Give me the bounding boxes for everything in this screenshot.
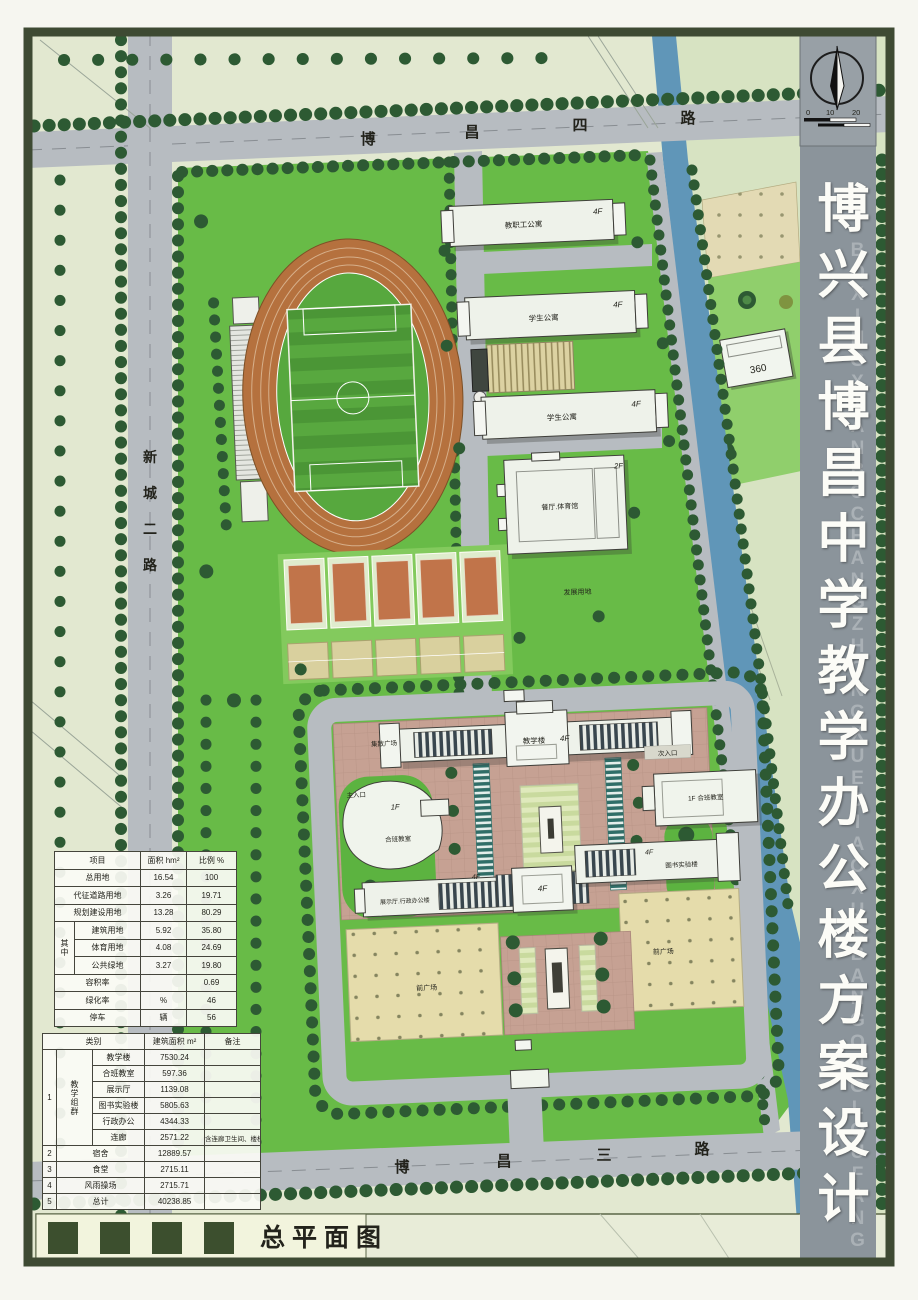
table-row: 1 教学组群 教学楼 7530.24 xyxy=(43,1050,261,1066)
cell xyxy=(205,1146,261,1162)
cell: 35.80 xyxy=(187,922,237,940)
cell xyxy=(205,1162,261,1178)
cell: % xyxy=(141,992,187,1010)
table-row: 总用地 16.54 100 xyxy=(55,869,237,887)
cell: 停车 xyxy=(55,1009,141,1027)
cell xyxy=(141,974,187,992)
road-top-char: 路 xyxy=(680,109,696,127)
cell: 80.29 xyxy=(187,904,237,922)
scale-tick: 10 xyxy=(826,108,834,117)
cell: 辆 xyxy=(141,1009,187,1027)
cell: 4.08 xyxy=(141,939,187,957)
cell: 19.71 xyxy=(187,887,237,905)
cell: 16.54 xyxy=(141,869,187,887)
header-item: 项目 xyxy=(55,852,141,870)
teaching-building-floors: 4F xyxy=(560,734,571,743)
group-label: 其中 xyxy=(55,922,75,975)
cell: 食堂 xyxy=(57,1162,145,1178)
cell: 规划建设用地 xyxy=(55,904,141,922)
cell: 风雨操场 xyxy=(57,1178,145,1194)
cell: 容积率 xyxy=(55,974,141,992)
drawing-title: 总平面图 xyxy=(260,1224,388,1252)
bottom-strip: 总平面图 xyxy=(36,1214,890,1260)
scale-tick: 0 xyxy=(806,108,810,117)
header-ratio: 比例 % xyxy=(187,852,237,870)
student-apartment-a-label: 学生公寓 xyxy=(528,312,558,323)
cell: 24.69 xyxy=(187,939,237,957)
cell: 3.27 xyxy=(141,957,187,975)
table-row: 项目 面积 hm² 比例 % xyxy=(55,852,237,870)
road-top-char: 四 xyxy=(572,117,587,134)
library-lab-floors: 4F xyxy=(645,849,654,856)
staff-apartment-floors: 4F xyxy=(593,207,604,216)
cell xyxy=(205,1178,261,1194)
cell: 1139.08 xyxy=(145,1082,205,1098)
cell: 597.36 xyxy=(145,1066,205,1082)
student-apartment-b-label: 学生公寓 xyxy=(547,411,577,422)
cell xyxy=(205,1066,261,1082)
cell: 体育用地 xyxy=(75,939,141,957)
cell: 公共绿地 xyxy=(75,957,141,975)
table-row: 3 食堂 2715.11 xyxy=(43,1162,261,1178)
teaching-complex: 教学楼 4F 1F 合班教室 1F 合班教室 展示厅.行政办公楼 4F xyxy=(332,692,765,924)
student-apartment-a-floors: 4F xyxy=(613,300,624,309)
cell: 展示厅 xyxy=(93,1082,145,1098)
scale-tick: 20 xyxy=(852,108,860,117)
road-left-char: 新 xyxy=(143,449,157,465)
table-row: 代征道路用地 3.26 19.71 xyxy=(55,887,237,905)
combined-class-west-floors: 1F xyxy=(391,802,401,811)
cell: 2715.71 xyxy=(145,1178,205,1194)
cell xyxy=(205,1114,261,1130)
table-row: 绿化率 % 46 xyxy=(55,992,237,1010)
cell xyxy=(205,1050,261,1066)
table-row: 5 总计 40238.85 xyxy=(43,1194,261,1210)
student-apartment-b-floors: 4F xyxy=(631,399,642,408)
road-bottom-char: 路 xyxy=(694,1140,710,1158)
cell xyxy=(205,1082,261,1098)
road-left-char: 路 xyxy=(143,557,158,573)
site-plan-sheet: 360 xyxy=(0,0,918,1300)
cell: 图书实验楼 xyxy=(93,1098,145,1114)
table-row: 体育用地 4.08 24.69 xyxy=(55,939,237,957)
cell: 总用地 xyxy=(55,869,141,887)
cell: 2571.22 xyxy=(145,1130,205,1146)
cell: 3 xyxy=(43,1162,57,1178)
cell: 12889.57 xyxy=(145,1146,205,1162)
road-top-char: 昌 xyxy=(464,124,479,141)
table-row: 规划建设用地 13.28 80.29 xyxy=(55,904,237,922)
teaching-building-label: 教学楼 xyxy=(523,735,546,746)
header-category: 类别 xyxy=(43,1034,145,1050)
table-row: 停车 辆 56 xyxy=(55,1009,237,1027)
road-top-char: 博 xyxy=(360,130,375,148)
sports-courts xyxy=(278,544,513,684)
legend-bars xyxy=(48,1222,234,1254)
exhibit-admin-floors: 4F xyxy=(472,874,481,881)
cell: 合班教室 xyxy=(93,1066,145,1082)
cell: 含连廊卫生间、楼梯 xyxy=(205,1130,261,1146)
cell: 绿化率 xyxy=(55,992,141,1010)
road-bottom-char: 三 xyxy=(596,1147,611,1164)
cell: 13.28 xyxy=(141,904,187,922)
header-area: 建筑面积 m² xyxy=(145,1034,205,1050)
header-remark: 备注 xyxy=(205,1034,261,1050)
canteen-gym-building: 餐厅.体育馆 2F xyxy=(496,449,632,560)
cell: 19.80 xyxy=(187,957,237,975)
cell: 3.26 xyxy=(141,887,187,905)
cell: 5 xyxy=(43,1194,57,1210)
cell: 4344.33 xyxy=(145,1114,205,1130)
group-no: 1 xyxy=(43,1050,57,1146)
cell: 7530.24 xyxy=(145,1050,205,1066)
cell: 建筑用地 xyxy=(75,922,141,940)
cell: 0.69 xyxy=(187,974,237,992)
center-block-floors: 4F xyxy=(538,884,549,893)
road-bottom-char: 昌 xyxy=(496,1153,511,1170)
cell: 100 xyxy=(187,869,237,887)
project-title: 博兴县博昌中学教学办公楼方案设计 xyxy=(803,164,873,1254)
cell: 5.92 xyxy=(141,922,187,940)
cell: 代征道路用地 xyxy=(55,887,141,905)
road-left-char: 城 xyxy=(143,485,157,501)
cell: 宿舍 xyxy=(57,1146,145,1162)
cell xyxy=(205,1098,261,1114)
floor-area-table: 类别 建筑面积 m² 备注 1 教学组群 教学楼 7530.24 合班教室 59… xyxy=(42,1033,261,1210)
cell: 5805.63 xyxy=(145,1098,205,1114)
cell: 教学楼 xyxy=(93,1050,145,1066)
header-area: 面积 hm² xyxy=(141,852,187,870)
cell: 40238.85 xyxy=(145,1194,205,1210)
cell: 46 xyxy=(187,992,237,1010)
table-row: 其中 建筑用地 5.92 35.80 xyxy=(55,922,237,940)
group-label: 教学组群 xyxy=(57,1050,93,1146)
table-row: 公共绿地 3.27 19.80 xyxy=(55,957,237,975)
cell xyxy=(205,1194,261,1210)
land-use-table: 项目 面积 hm² 比例 % 总用地 16.54 100 代征道路用地 3.26… xyxy=(54,851,237,1027)
cell: 2715.11 xyxy=(145,1162,205,1178)
table-row: 类别 建筑面积 m² 备注 xyxy=(43,1034,261,1050)
road-left-char: 二 xyxy=(143,521,157,537)
table-row: 容积率 0.69 xyxy=(55,974,237,992)
cell: 2 xyxy=(43,1146,57,1162)
cell: 4 xyxy=(43,1178,57,1194)
canteen-gym-floors: 2F xyxy=(613,461,624,470)
table-row: 4 风雨操场 2715.71 xyxy=(43,1178,261,1194)
table-row: 2 宿舍 12889.57 xyxy=(43,1146,261,1162)
cell: 行政办公 xyxy=(93,1114,145,1130)
staff-apartment-label: 教职工公寓 xyxy=(505,218,543,230)
cell: 连廊 xyxy=(93,1130,145,1146)
cell: 总计 xyxy=(57,1194,145,1210)
road-bottom-char: 博 xyxy=(394,1158,409,1176)
cell: 56 xyxy=(187,1009,237,1027)
